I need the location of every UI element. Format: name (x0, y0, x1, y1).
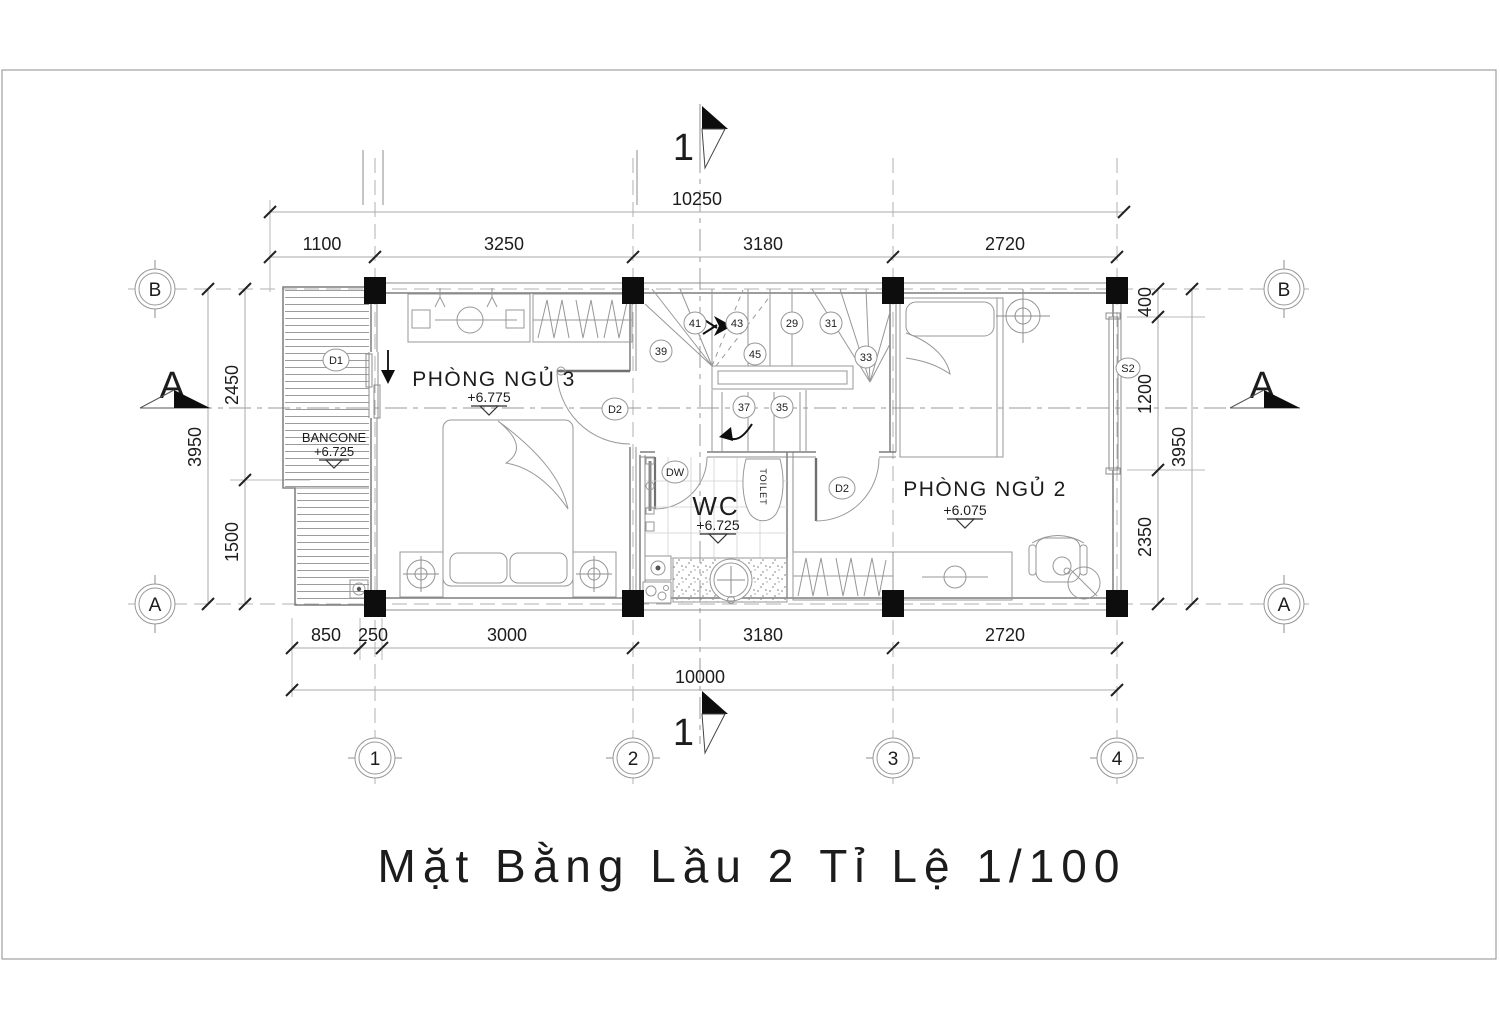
section-label-1-bottom: 1 (673, 712, 694, 754)
grid-bubble-2: 2 (628, 749, 639, 770)
grid-bubble-b-right: B (1278, 280, 1291, 301)
dimensions-top: 10250 1100 3250 3180 2720 (264, 189, 1130, 292)
bedroom2-name: PHÒNG NGỦ 2 (903, 477, 1067, 501)
dim-right-1: 400 (1135, 287, 1155, 317)
step-number: 35 (776, 402, 788, 414)
bedroom2-level: +6.075 (943, 502, 986, 518)
stair-down-arrow-icon (381, 350, 395, 384)
window-s2 (1106, 313, 1120, 474)
dim-left-2: 1500 (222, 522, 242, 562)
dim-top-2: 3250 (484, 234, 524, 254)
section-marker-a-left: A (140, 365, 210, 408)
vanity-table (408, 288, 530, 342)
bed-single (900, 298, 1003, 457)
dim-bottom-overall: 10000 (675, 667, 725, 687)
tag-d2-bedroom3: D2 (608, 404, 622, 416)
chair-and-stool (1029, 536, 1100, 600)
dim-left-overall: 3950 (185, 427, 205, 467)
ceiling-fan-icon (996, 289, 1050, 343)
nightstand-left (400, 552, 443, 597)
bedroom2-furniture (793, 289, 1100, 600)
floor-plan-drawing: 10250 1100 3250 3180 2720 850 250 3000 3… (0, 0, 1500, 1029)
desk (893, 552, 1012, 600)
drawing-title: Mặt Bằng Lầu 2 Tỉ Lệ 1/100 (378, 840, 1127, 892)
tag-d1: D1 (329, 355, 343, 367)
tag-s2: S2 (1121, 363, 1134, 375)
toilet: TOILET (743, 459, 783, 521)
dim-top-4: 2720 (985, 234, 1025, 254)
stairs (645, 289, 890, 452)
stair-step-numbers: 39 41 43 29 31 45 33 37 35 (650, 312, 877, 418)
dim-right-overall: 3950 (1169, 427, 1189, 467)
step-number: 33 (860, 352, 872, 364)
section-label-1-top: 1 (673, 127, 694, 169)
dimensions-right: 400 1200 2350 3950 (1127, 283, 1205, 610)
dim-right-3: 2350 (1135, 517, 1155, 557)
dim-top-overall: 10250 (672, 189, 722, 209)
bedroom3-level: +6.775 (467, 389, 510, 405)
dim-left-1: 2450 (222, 365, 242, 405)
dim-right-2: 1200 (1135, 374, 1155, 414)
dim-top-3: 3180 (743, 234, 783, 254)
bed-double (443, 420, 573, 586)
dim-bottom-4: 3180 (743, 625, 783, 645)
grid-bubble-a-left: A (149, 595, 162, 616)
floor-drain-box (645, 556, 671, 580)
grid-bubble-1: 1 (370, 749, 381, 770)
step-number: 29 (786, 318, 798, 330)
step-number: 45 (749, 349, 761, 361)
shelf-box (643, 582, 671, 603)
dim-bottom-5: 2720 (985, 625, 1025, 645)
dim-bottom-1: 850 (311, 625, 341, 645)
floor-plan-page: 10250 1100 3250 3180 2720 850 250 3000 3… (0, 0, 1500, 1029)
level-symbol (700, 534, 736, 543)
stair-arrow-down-icon (719, 424, 752, 441)
bedroom3-furniture (400, 288, 632, 597)
dim-bottom-3: 3000 (487, 625, 527, 645)
grid-bubble-a-right: A (1278, 595, 1291, 616)
page-border-frame (2, 70, 1496, 959)
wall-lamp-icon (435, 288, 497, 307)
step-number: 41 (689, 318, 701, 330)
shower-fixture (646, 458, 654, 531)
toilet-label: TOILET (758, 468, 768, 505)
balcony-name: BANCONE (302, 430, 367, 445)
wc-level: +6.725 (696, 517, 739, 533)
grid-bubble-b-left: B (149, 280, 162, 301)
room-labels: PHÒNG NGỦ 3 +6.775 PHÒNG NGỦ 2 +6.075 WC… (302, 367, 1067, 543)
tag-d2-bedroom2: D2 (835, 483, 849, 495)
dim-top-1: 1100 (303, 234, 342, 254)
dim-bottom-2: 250 (358, 625, 388, 645)
level-symbol (471, 406, 507, 415)
dimensions-bottom: 850 250 3000 3180 2720 10000 (286, 618, 1123, 697)
wardrobe-bedroom3 (533, 294, 632, 342)
step-number: 37 (738, 402, 750, 414)
level-symbol (947, 519, 983, 528)
step-number: 39 (655, 346, 667, 358)
balcony-level: +6.725 (314, 444, 354, 459)
section-marker-1-top: 1 (673, 104, 728, 169)
step-number: 31 (825, 318, 837, 330)
wardrobe-bedroom2 (793, 552, 893, 600)
tag-dw: DW (666, 467, 685, 479)
grid-bubble-4: 4 (1112, 749, 1123, 770)
vanity-counter (673, 558, 787, 604)
grid-bubble-3: 3 (888, 749, 899, 770)
section-marker-a-right: A (1230, 365, 1300, 408)
step-number: 43 (731, 318, 743, 330)
bedroom3-name: PHÒNG NGỦ 3 (412, 367, 576, 391)
nightstand-right (573, 552, 616, 597)
